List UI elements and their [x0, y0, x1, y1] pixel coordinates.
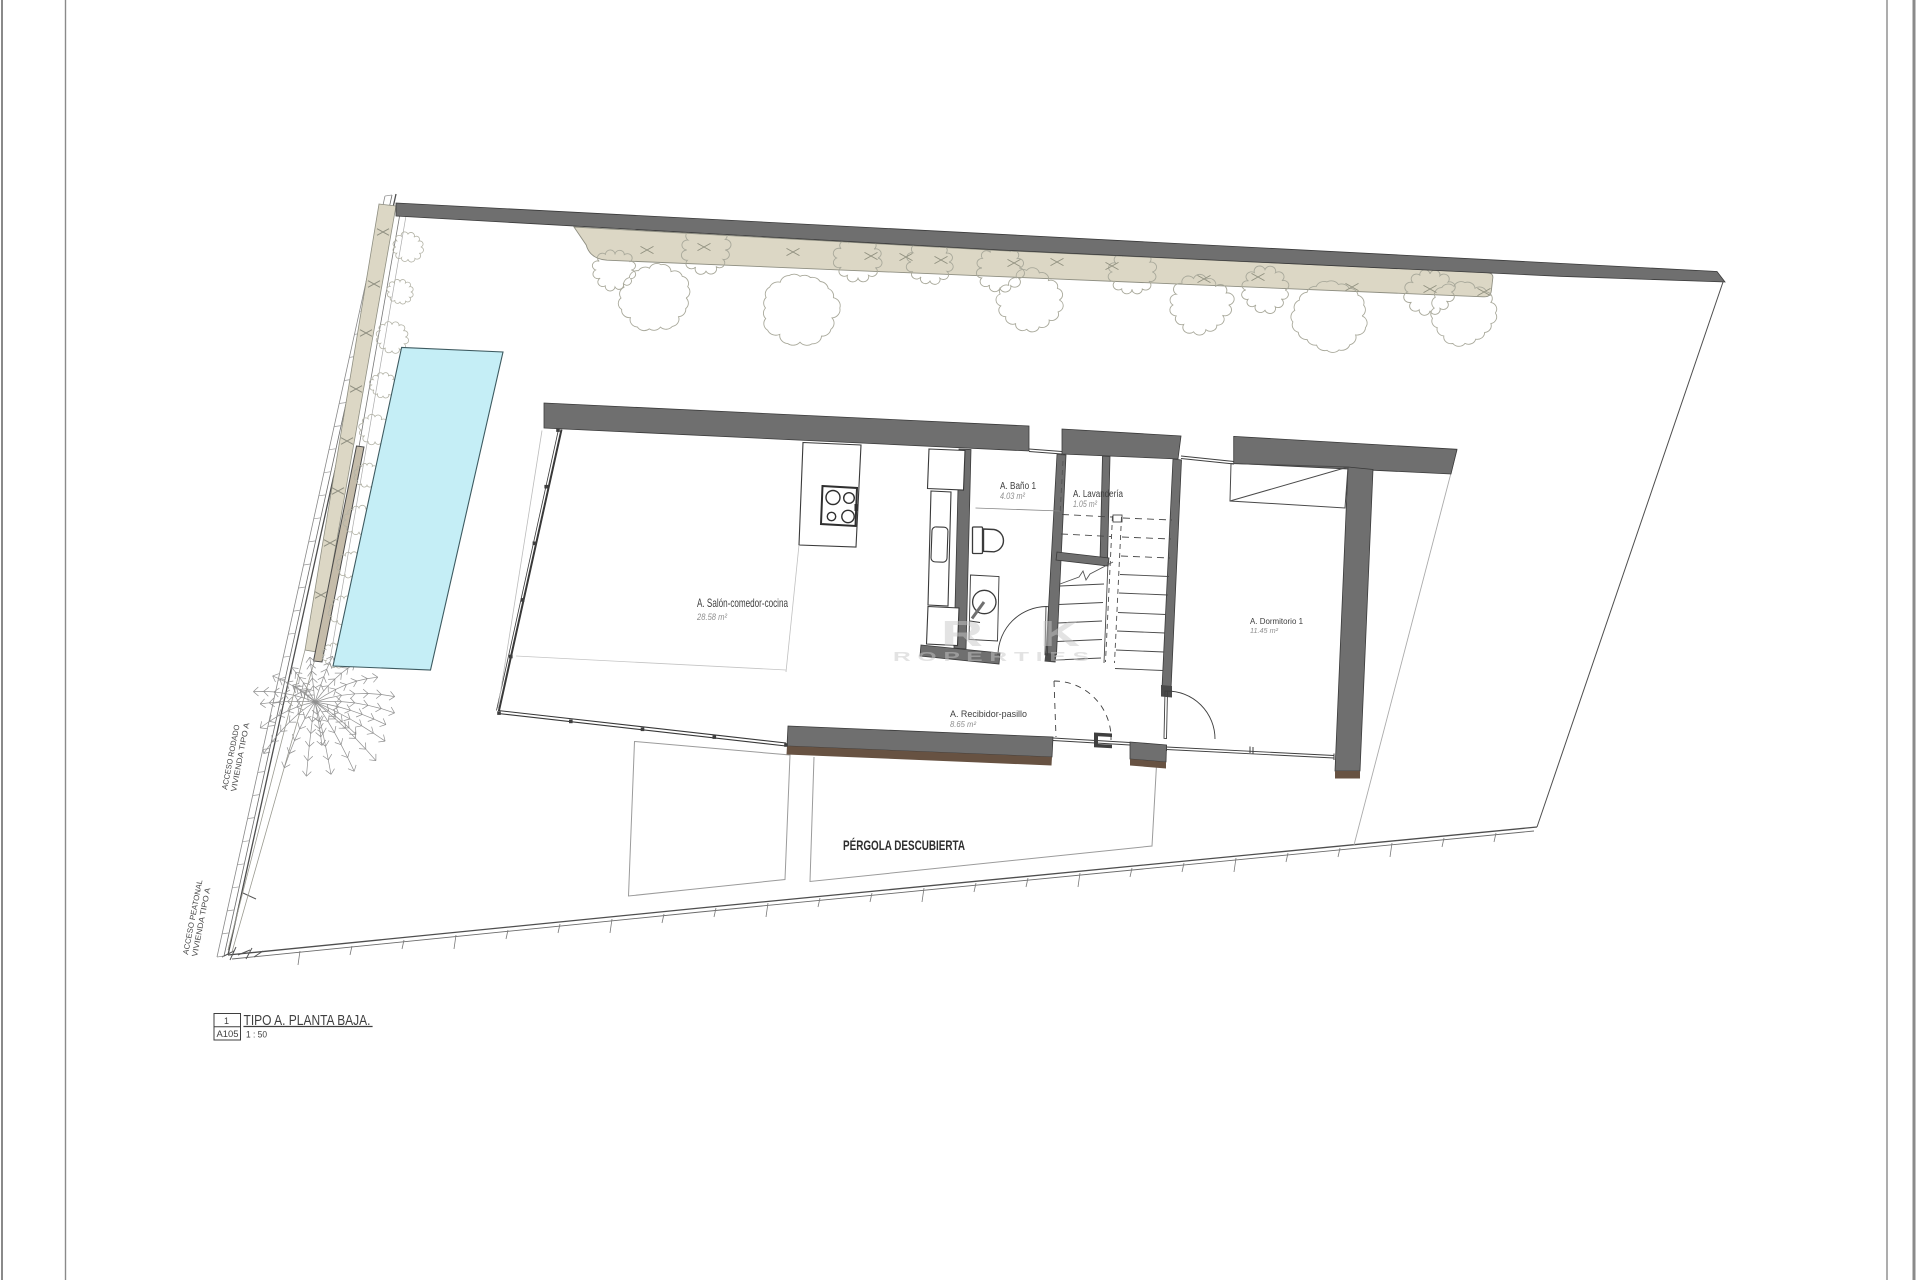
svg-text:4.03 m²: 4.03 m² [1000, 491, 1026, 501]
svg-text:A. Recibidor-pasillo: A. Recibidor-pasillo [950, 709, 1027, 720]
svg-text:1: 1 [224, 1016, 229, 1026]
svg-text:1.05 m²: 1.05 m² [1073, 499, 1098, 509]
svg-text:1 : 50: 1 : 50 [246, 1030, 267, 1041]
svg-text:K: K [1040, 613, 1080, 654]
svg-text:R: R [941, 613, 983, 654]
svg-text:A. Dormitorio 1: A. Dormitorio 1 [1250, 616, 1303, 626]
svg-text:A. Salón-comedor-cocina: A. Salón-comedor-cocina [697, 596, 788, 610]
svg-text:TIPO A. PLANTA BAJA.: TIPO A. PLANTA BAJA. [244, 1013, 371, 1029]
svg-text:A105: A105 [217, 1029, 239, 1040]
svg-text:11.45 m²: 11.45 m² [1250, 626, 1278, 635]
svg-text:R O P E R T I E S: R O P E R T I E S [893, 649, 1090, 664]
svg-text:8.65 m²: 8.65 m² [950, 720, 976, 729]
svg-text:PÉRGOLA DESCUBIERTA: PÉRGOLA DESCUBIERTA [843, 837, 965, 853]
svg-text:28.58 m²: 28.58 m² [696, 612, 728, 622]
